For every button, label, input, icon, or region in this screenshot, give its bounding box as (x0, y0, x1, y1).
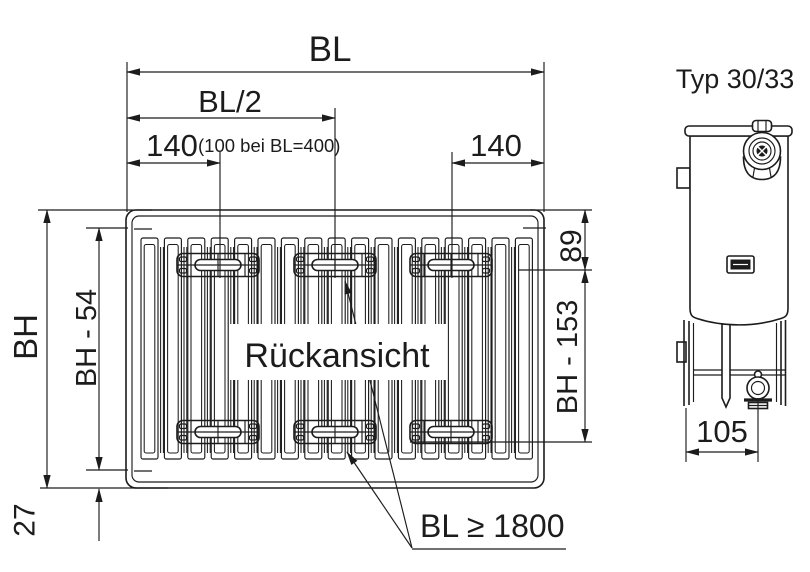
label-BH-54: BH - 54 (71, 289, 103, 387)
label-27: 27 (9, 503, 42, 536)
dimension-labels: BL BL/2 140 (100 bei BL=400) 140 BH BH -… (7, 30, 588, 544)
label-BL: BL (309, 30, 352, 69)
wall-bracket-bottom-middle (294, 421, 376, 444)
label-89: 89 (555, 229, 588, 262)
wall-bracket-bottom-left (177, 421, 259, 444)
label-BL2: BL/2 (198, 84, 262, 119)
label-140-note: (100 bei BL=400) (198, 135, 340, 156)
label-BH-153: BH - 153 (552, 300, 584, 414)
valve-body (747, 377, 769, 399)
top-grille-cap (685, 126, 792, 136)
valve-spindle (753, 121, 772, 132)
mount-tab-top (677, 168, 690, 188)
brand-logo-badge (727, 256, 754, 273)
label-140-left: 140 (146, 128, 198, 163)
side-view: Typ 30/33 (676, 64, 795, 462)
rear-view-label: Rückansicht (244, 337, 430, 375)
panel-plates (684, 320, 786, 407)
radiator-dimension-drawing: Rückansicht (0, 0, 810, 572)
leader-to-bottom-bracket (347, 452, 412, 548)
label-140-right: 140 (470, 128, 522, 163)
type-label: Typ 30/33 (676, 64, 795, 94)
middle-plate (722, 324, 730, 407)
label-105: 105 (696, 414, 748, 449)
wall-bracket-top-left (177, 254, 259, 277)
label-BH: BH (7, 314, 44, 360)
drawing-canvas: Rückansicht (0, 0, 810, 572)
label-BL-1800: BL ≥ 1800 (420, 508, 564, 544)
